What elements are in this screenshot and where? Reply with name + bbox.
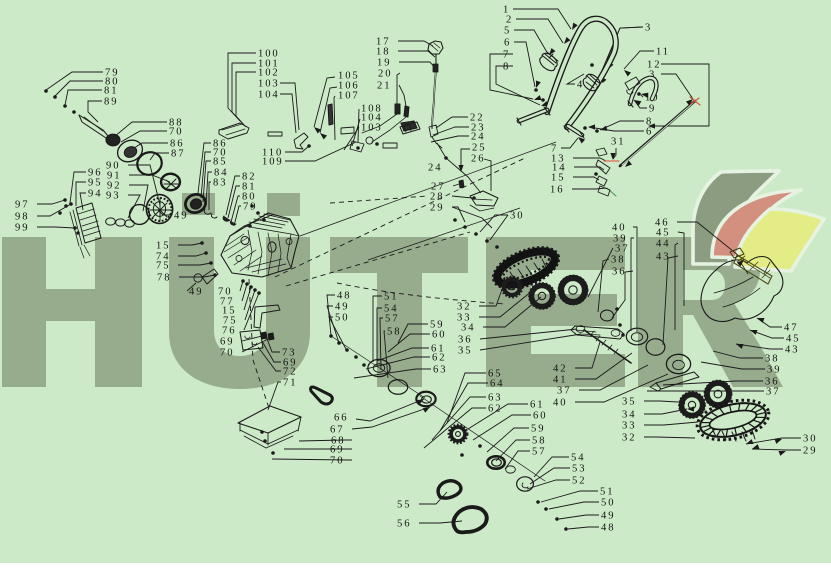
svg-text:51: 51 [384, 292, 398, 303]
svg-text:63: 63 [433, 365, 447, 376]
svg-text:75: 75 [156, 261, 170, 272]
svg-text:31: 31 [611, 137, 625, 148]
svg-text:35: 35 [622, 397, 636, 408]
svg-text:79: 79 [243, 202, 257, 213]
svg-text:40: 40 [553, 398, 567, 409]
svg-text:54: 54 [571, 453, 585, 464]
svg-text:57: 57 [385, 314, 399, 325]
svg-text:95: 95 [88, 178, 102, 189]
svg-text:71: 71 [283, 378, 297, 389]
svg-text:40: 40 [612, 223, 626, 234]
svg-text:39: 39 [767, 365, 781, 376]
svg-text:35: 35 [458, 346, 472, 357]
svg-text:24: 24 [428, 163, 442, 174]
svg-text:53: 53 [572, 464, 586, 475]
svg-text:67: 67 [330, 425, 344, 436]
svg-text:85: 85 [213, 157, 227, 168]
svg-text:33: 33 [622, 421, 636, 432]
svg-text:66: 66 [334, 413, 348, 424]
svg-text:6: 6 [504, 38, 511, 49]
svg-text:93: 93 [106, 191, 120, 202]
svg-text:45: 45 [656, 228, 670, 239]
svg-text:15: 15 [156, 241, 170, 252]
svg-text:98: 98 [15, 212, 29, 223]
svg-text:94: 94 [88, 189, 102, 200]
svg-text:30: 30 [803, 434, 817, 445]
svg-text:6: 6 [646, 127, 653, 138]
svg-text:37: 37 [615, 244, 629, 255]
svg-text:50: 50 [335, 313, 349, 324]
svg-text:28: 28 [430, 192, 444, 203]
svg-text:49: 49 [335, 302, 349, 313]
svg-text:69: 69 [220, 337, 234, 348]
svg-text:32: 32 [622, 433, 636, 444]
svg-text:34: 34 [622, 410, 636, 421]
svg-text:81: 81 [104, 86, 118, 97]
svg-text:50: 50 [601, 498, 615, 509]
svg-text:42: 42 [553, 364, 567, 375]
svg-text:59: 59 [531, 424, 545, 435]
svg-text:48: 48 [601, 523, 615, 534]
svg-text:36: 36 [612, 267, 626, 278]
svg-text:63: 63 [488, 393, 502, 404]
svg-text:72: 72 [283, 367, 297, 378]
svg-text:70: 70 [330, 456, 344, 467]
svg-text:32: 32 [457, 302, 471, 313]
svg-text:70: 70 [169, 127, 183, 138]
svg-text:55: 55 [397, 500, 411, 511]
svg-text:11: 11 [656, 47, 670, 58]
svg-text:18: 18 [376, 47, 390, 58]
svg-text:70: 70 [220, 348, 234, 359]
svg-text:34: 34 [461, 323, 475, 334]
svg-text:87: 87 [171, 149, 185, 160]
svg-text:21: 21 [377, 81, 391, 92]
svg-text:8: 8 [503, 62, 510, 73]
svg-text:19: 19 [377, 58, 391, 69]
svg-text:24: 24 [471, 132, 485, 143]
svg-text:25: 25 [472, 143, 486, 154]
svg-text:49: 49 [601, 511, 615, 522]
svg-text:49: 49 [189, 287, 203, 298]
svg-text:60: 60 [533, 411, 547, 422]
svg-text:52: 52 [572, 476, 586, 487]
svg-text:107: 107 [338, 91, 360, 102]
svg-text:36: 36 [458, 335, 472, 346]
svg-text:78: 78 [157, 273, 171, 284]
svg-text:5: 5 [504, 26, 511, 37]
svg-text:57: 57 [532, 447, 546, 458]
svg-text:45: 45 [786, 334, 800, 345]
svg-text:15: 15 [551, 173, 565, 184]
svg-text:58: 58 [532, 436, 546, 447]
svg-text:7: 7 [503, 50, 510, 61]
svg-text:62: 62 [432, 353, 446, 364]
svg-text:2: 2 [506, 15, 513, 26]
svg-text:38: 38 [611, 255, 625, 266]
svg-text:16: 16 [550, 185, 564, 196]
svg-text:61: 61 [530, 400, 544, 411]
svg-text:41: 41 [553, 375, 567, 386]
svg-text:26: 26 [471, 154, 485, 165]
svg-text:37: 37 [766, 387, 780, 398]
svg-text:49: 49 [174, 211, 188, 222]
svg-text:99: 99 [15, 223, 29, 234]
svg-text:51: 51 [600, 487, 614, 498]
svg-text:9: 9 [649, 104, 656, 115]
svg-text:56: 56 [397, 519, 411, 530]
svg-text:76: 76 [222, 326, 236, 337]
svg-text:20: 20 [378, 69, 392, 80]
svg-text:104: 104 [258, 90, 280, 101]
svg-text:69: 69 [330, 445, 344, 456]
svg-text:103: 103 [258, 79, 280, 90]
svg-text:97: 97 [15, 200, 29, 211]
svg-text:30: 30 [510, 211, 524, 222]
svg-text:3: 3 [645, 23, 652, 34]
svg-text:60: 60 [432, 330, 446, 341]
svg-text:109: 109 [262, 157, 284, 168]
svg-text:47: 47 [784, 323, 798, 334]
svg-text:43: 43 [785, 345, 799, 356]
svg-text:37: 37 [557, 386, 571, 397]
svg-text:58: 58 [387, 327, 401, 338]
svg-text:83: 83 [213, 178, 227, 189]
svg-text:29: 29 [430, 203, 444, 214]
svg-text:89: 89 [104, 97, 118, 108]
svg-text:48: 48 [337, 291, 351, 302]
svg-text:102: 102 [258, 68, 280, 79]
svg-text:29: 29 [803, 446, 817, 457]
svg-text:44: 44 [656, 239, 670, 250]
svg-text:38: 38 [765, 354, 779, 365]
svg-text:64: 64 [490, 379, 504, 390]
